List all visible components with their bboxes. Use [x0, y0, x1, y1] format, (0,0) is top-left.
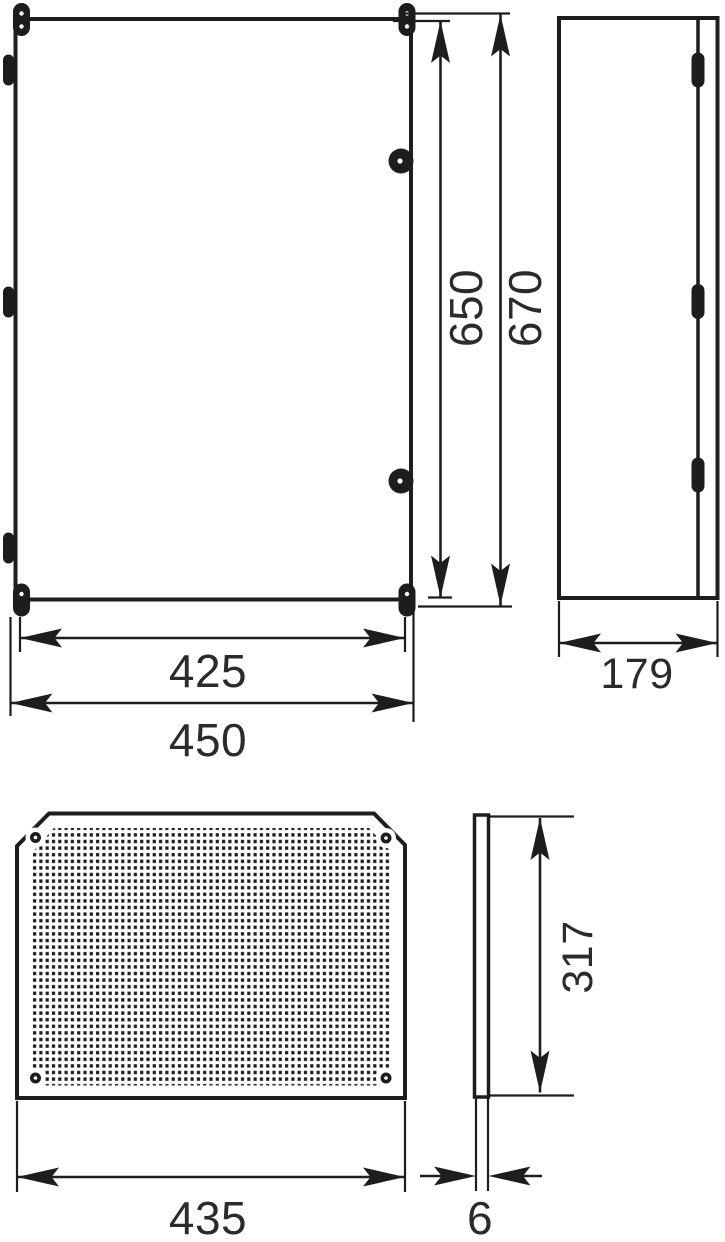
- dim-label-plate-thickness: 6: [467, 1192, 493, 1242]
- dimension-plate-width: 435: [17, 1101, 405, 1242]
- screw-dot: [405, 24, 409, 28]
- dimension-plate-thickness: 6: [420, 1167, 542, 1242]
- screw-dot: [19, 11, 23, 15]
- corner-screw-top-left: [13, 3, 30, 36]
- dimension-depth: 179: [559, 601, 718, 698]
- hinge-left-bottom: [3, 533, 14, 564]
- corner-screw-top-right: [399, 3, 416, 36]
- lock-dot: [397, 478, 402, 483]
- enclosure-front-view: 650 670 425 450: [3, 3, 551, 766]
- plate-edge-profile: [475, 815, 489, 1097]
- dimension-plate-height: 317: [488, 817, 602, 1096]
- hinge-left-top: [3, 55, 14, 86]
- mounting-lug-middle: [692, 284, 705, 319]
- enclosure-side-view: 179: [559, 18, 718, 698]
- dim-label-door-width: 425: [169, 645, 247, 697]
- hinge-left-middle: [3, 287, 14, 318]
- technical-drawing: 650 670 425 450: [0, 0, 725, 1242]
- mounting-plate-edge-view: 317 6: [420, 815, 602, 1242]
- mounting-lug-top: [692, 53, 705, 88]
- door-panel: [16, 19, 412, 600]
- mounting-plate-front-view: 435: [17, 814, 405, 1242]
- dim-label-plate-height: 317: [554, 920, 602, 993]
- dim-label-plate-width: 435: [169, 1192, 247, 1242]
- screw-dot: [405, 592, 409, 596]
- drawing-sheet: 650 670 425 450: [0, 0, 725, 1242]
- dim-label-depth: 179: [600, 650, 673, 698]
- dim-label-overall-height: 670: [499, 269, 551, 347]
- screw-dot: [19, 24, 23, 28]
- perforation-pattern: [31, 828, 391, 1086]
- dimension-door-height: 650: [393, 21, 492, 598]
- mounting-lug-bottom: [692, 458, 705, 493]
- lock-dot: [397, 158, 402, 163]
- corner-screw-bottom-left: [13, 584, 30, 617]
- dim-label-door-height: 650: [440, 269, 492, 347]
- screw-dot: [19, 592, 23, 596]
- dim-label-overall-width: 450: [169, 714, 247, 766]
- dimension-door-width: 425: [20, 617, 405, 697]
